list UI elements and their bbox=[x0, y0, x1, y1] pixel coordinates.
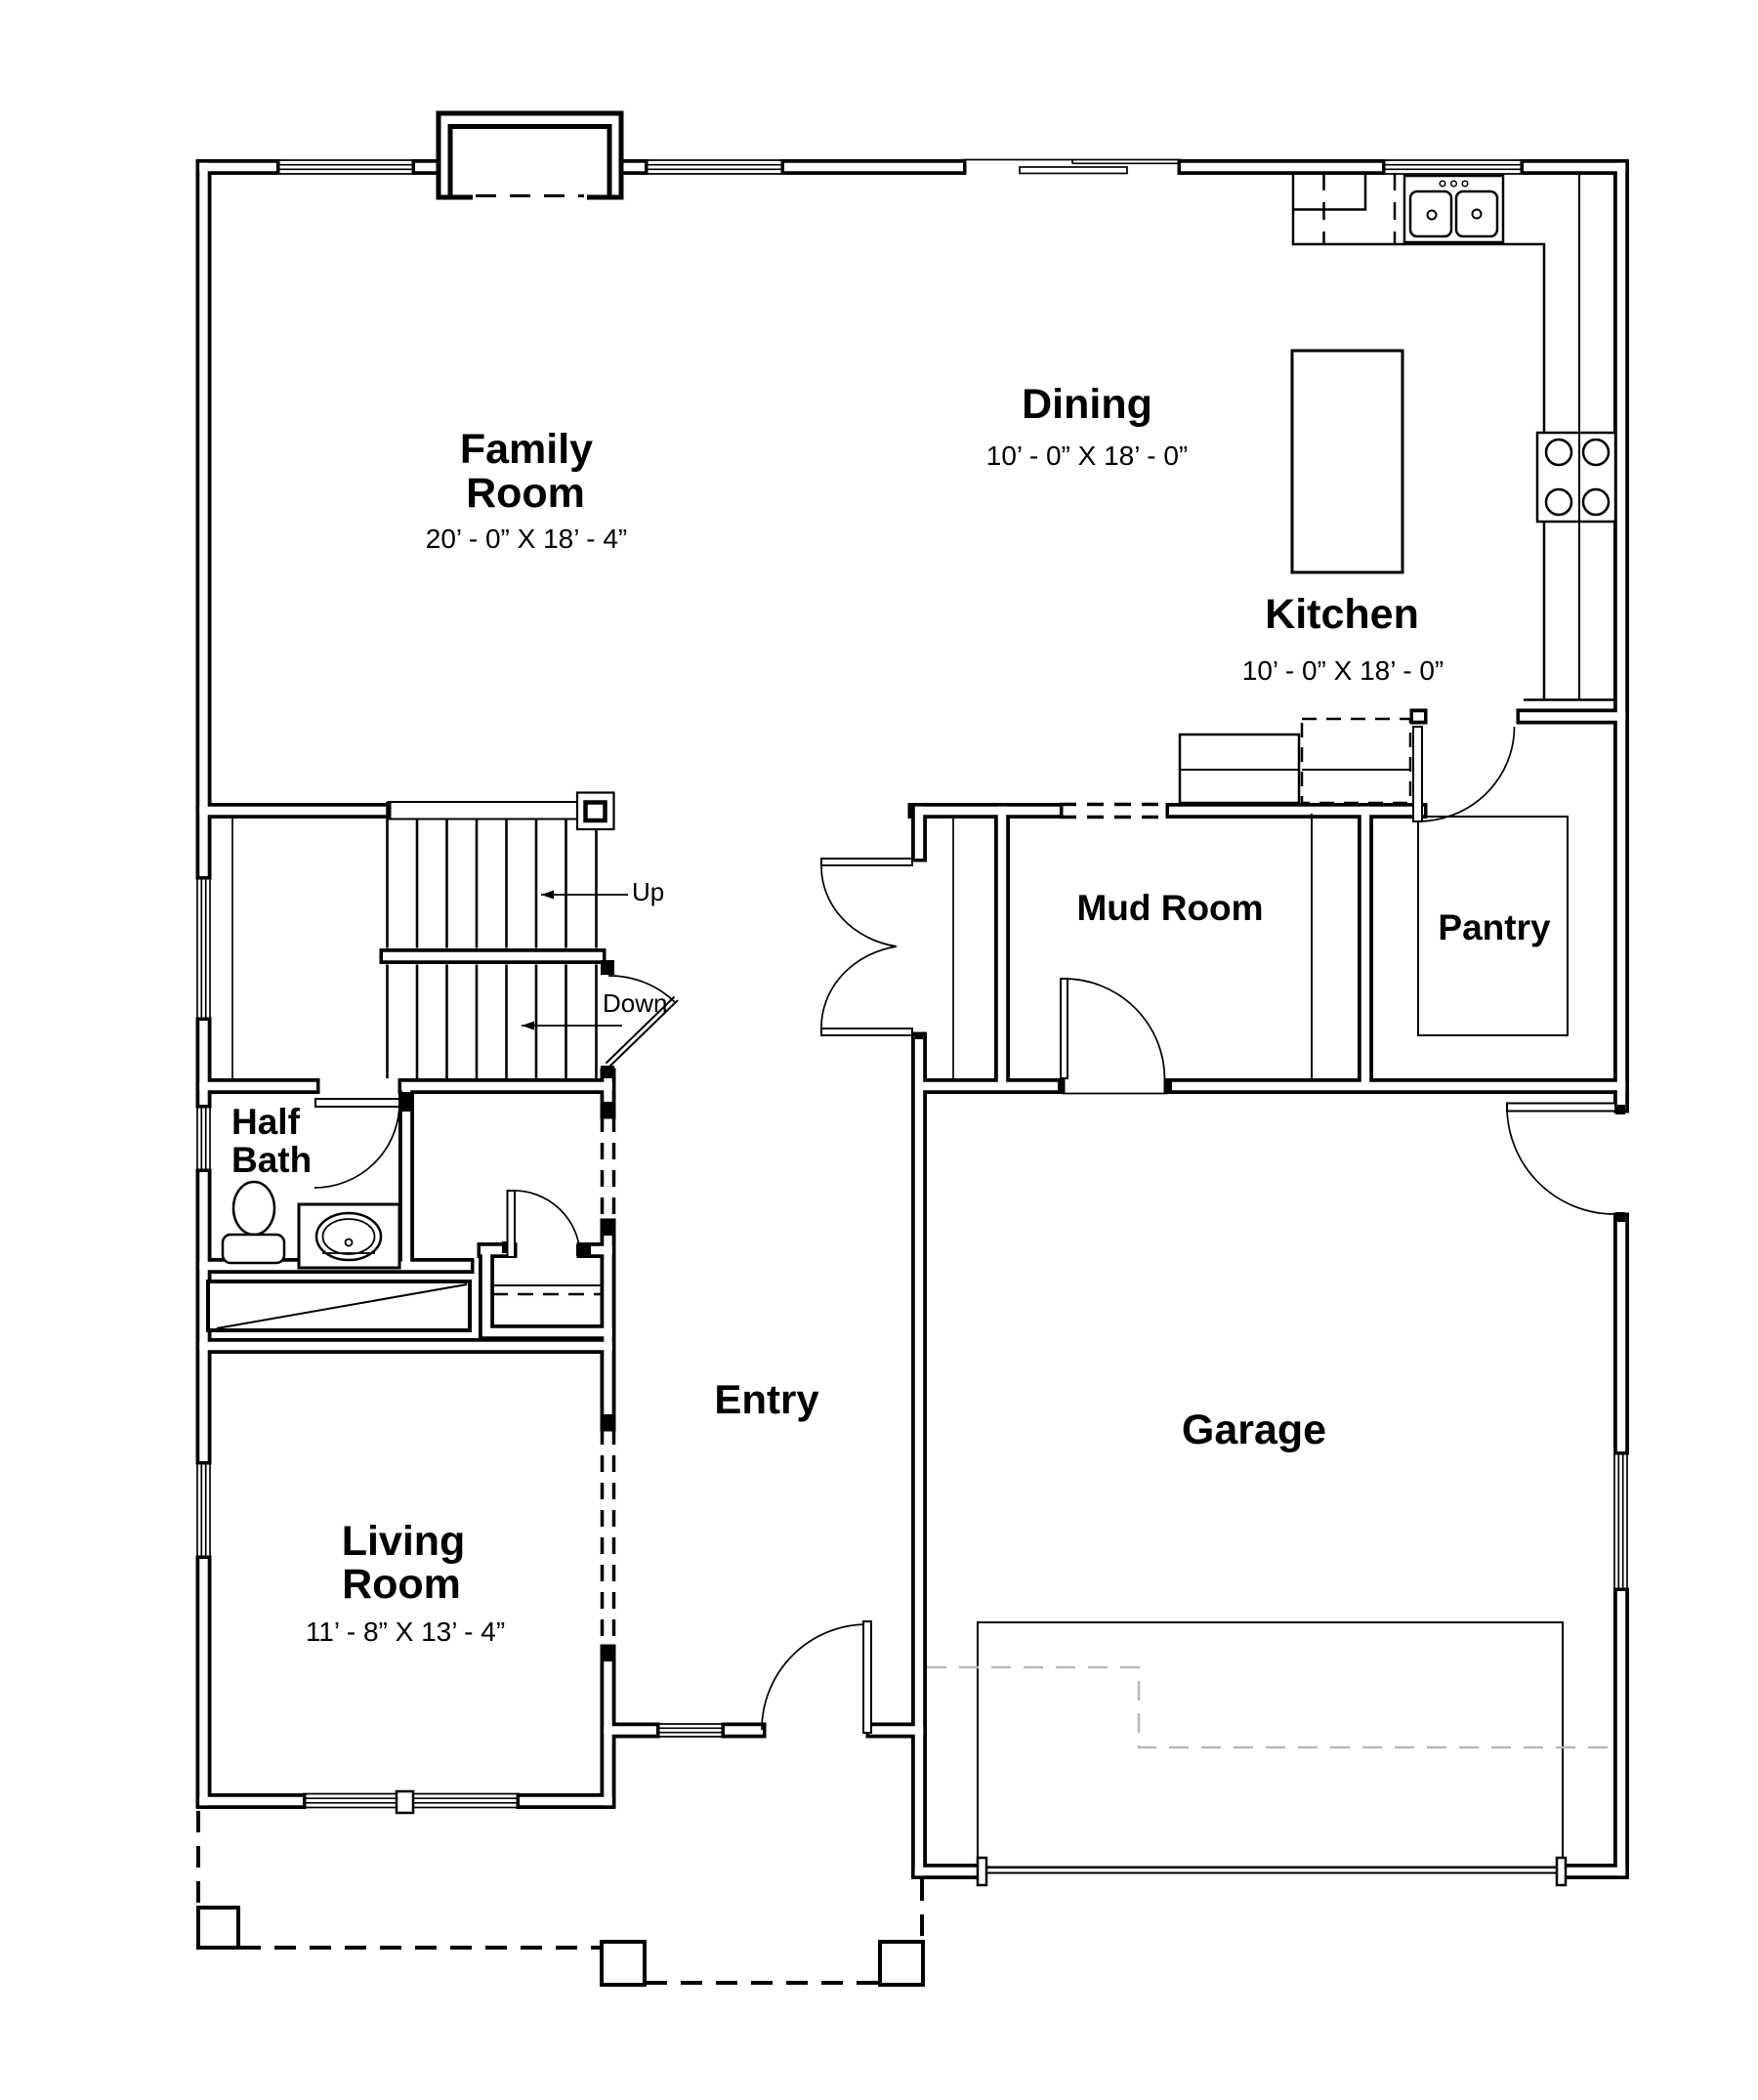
svg-text:Pantry: Pantry bbox=[1438, 907, 1551, 947]
svg-text:Up: Up bbox=[632, 877, 664, 906]
svg-text:Garage: Garage bbox=[1182, 1407, 1326, 1453]
svg-text:Dining: Dining bbox=[1022, 381, 1152, 428]
svg-text:Mud Room: Mud Room bbox=[1076, 888, 1263, 928]
svg-text:Kitchen: Kitchen bbox=[1265, 591, 1419, 638]
svg-text:Room: Room bbox=[342, 1561, 461, 1608]
svg-text:Entry: Entry bbox=[714, 1376, 819, 1422]
svg-text:10’ - 0” X 18’ - 0”: 10’ - 0” X 18’ - 0” bbox=[1242, 655, 1444, 686]
svg-text:Half: Half bbox=[231, 1102, 301, 1142]
svg-text:Family: Family bbox=[460, 426, 593, 473]
svg-text:Bath: Bath bbox=[231, 1140, 312, 1180]
svg-text:Down: Down bbox=[603, 988, 667, 1018]
svg-text:Living: Living bbox=[342, 1518, 466, 1565]
svg-text:11’ - 8” X 13’ - 4”: 11’ - 8” X 13’ - 4” bbox=[306, 1617, 505, 1647]
svg-text:Room: Room bbox=[466, 470, 585, 517]
svg-text:10’ - 0” X 18’ - 0”: 10’ - 0” X 18’ - 0” bbox=[986, 441, 1188, 471]
svg-text:20’ - 0” X 18’ - 4”: 20’ - 0” X 18’ - 4” bbox=[426, 524, 627, 554]
